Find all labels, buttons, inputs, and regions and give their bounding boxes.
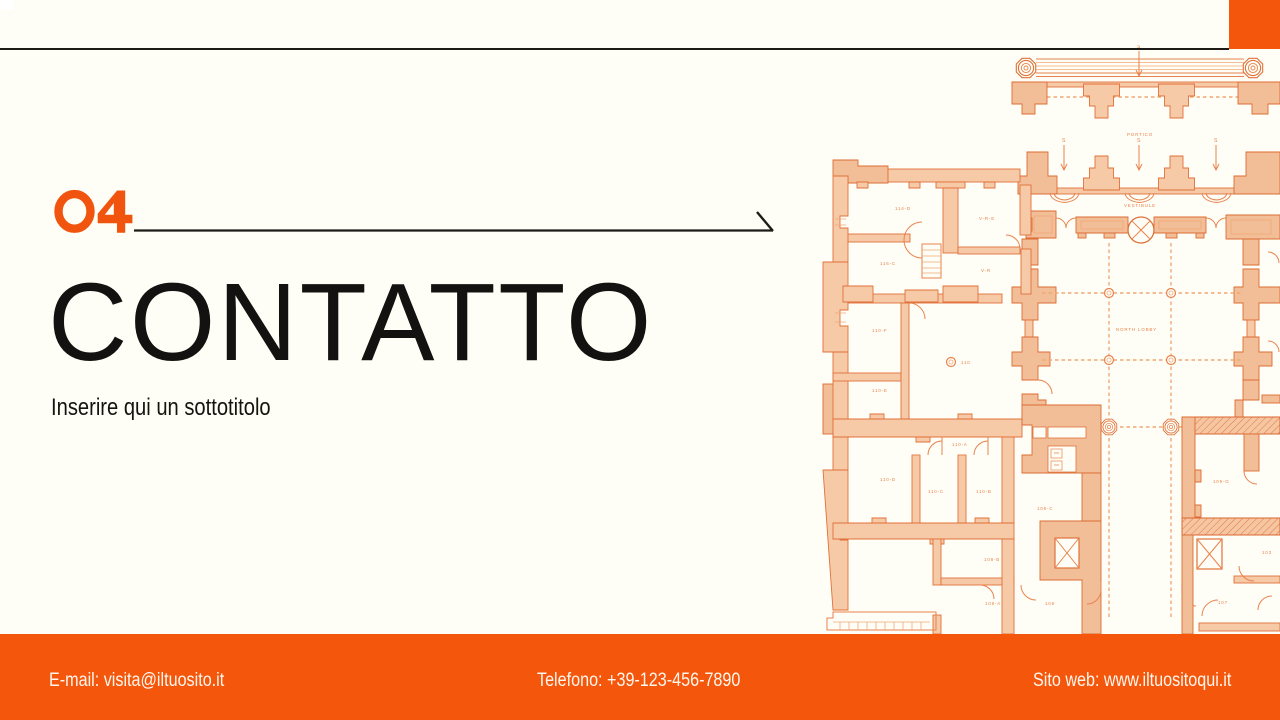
svg-text:108: 108 bbox=[1045, 601, 1055, 606]
svg-text:VESTIBULE: VESTIBULE bbox=[1124, 203, 1156, 208]
svg-text:V-R: V-R bbox=[981, 268, 991, 273]
svg-text:V-R-E: V-R-E bbox=[979, 216, 995, 221]
svg-text:110: 110 bbox=[961, 360, 971, 365]
svg-text:110-B: 110-B bbox=[976, 489, 992, 494]
svg-text:110-F: 110-F bbox=[872, 328, 887, 333]
svg-text:NORTH LOBBY: NORTH LOBBY bbox=[1116, 327, 1157, 332]
svg-text:108-B: 108-B bbox=[984, 557, 1000, 562]
svg-text:110-A: 110-A bbox=[952, 442, 968, 447]
svg-text:108-A: 108-A bbox=[985, 601, 1001, 606]
svg-text:107: 107 bbox=[1218, 600, 1228, 605]
svg-text:110-C: 110-C bbox=[928, 489, 944, 494]
svg-text:114-D: 114-D bbox=[895, 206, 911, 211]
svg-text:116-C: 116-C bbox=[880, 261, 896, 266]
svg-text:109-G: 109-G bbox=[1213, 479, 1230, 484]
svg-text:PORTICO: PORTICO bbox=[1127, 132, 1153, 137]
svg-text:108-C: 108-C bbox=[1037, 506, 1053, 511]
svg-text:110-E: 110-E bbox=[872, 388, 888, 393]
svg-text:110-D: 110-D bbox=[880, 477, 896, 482]
svg-text:103: 103 bbox=[1262, 550, 1272, 555]
